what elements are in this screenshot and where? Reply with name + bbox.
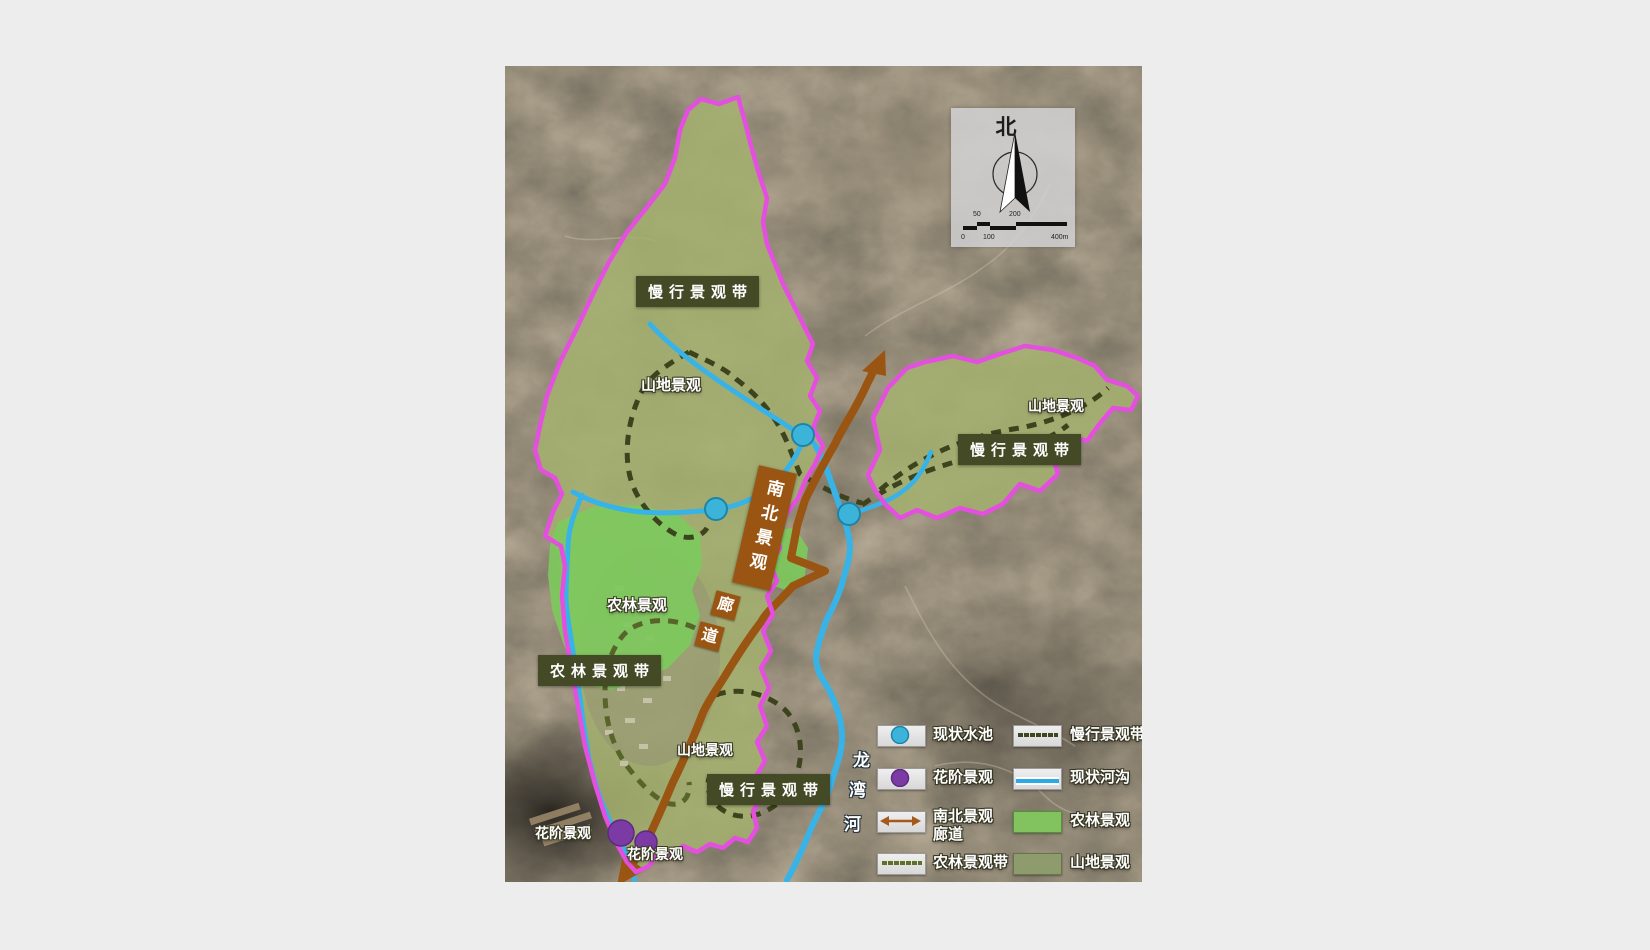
legend-label-flower-terrace: 花阶景观 [933,769,993,786]
river-swatch-line [1016,777,1059,785]
legend-swatch-water-pool [877,725,926,747]
slow-belt-dash-icon [1014,726,1059,744]
farm-belt-dash-icon [878,854,923,872]
legend-swatch-slow-belt [1013,725,1062,747]
legend-label-farm-belt: 农林景观带 [933,854,1008,871]
satellite-map: 慢行景观带 山地景观 山地景观 慢行景观带 南北景观 廊 道 农林景观 农林景观… [505,66,1142,882]
compass-scale-box: 北 50 200 0 100 400m [951,108,1075,247]
label-mountain-top: 山地景观 [641,374,701,395]
river-name-char-1: 龙 [853,746,870,771]
scale-0: 0 [961,234,965,241]
label-slow-belt-right: 慢行景观带 [958,434,1081,465]
scale-400m: 400m [1051,234,1069,241]
legend-label-water-pool: 现状水池 [933,726,993,743]
legend-label-corridor-line2: 廊道 [933,826,963,843]
legend-swatch-river [1013,768,1062,790]
label-flower-right: 花阶景观 [627,844,683,864]
scale-50: 50 [973,211,981,218]
legend-label-corridor-line1: 南北景观 [933,808,993,825]
north-arrow-left-blade [1000,132,1015,212]
legend-label-mountain: 山地景观 [1070,854,1130,871]
corridor-arrow-icon [878,812,923,830]
water-pool-c [838,503,860,525]
legend-swatch-farm-belt [877,853,926,875]
label-flower-left: 花阶景观 [535,823,591,843]
north-arrow-right-blade [1015,132,1030,212]
label-mountain-south: 山地景观 [677,740,733,760]
legend-label-river: 现状河沟 [1070,769,1130,786]
flower-terrace-swatch-icon [878,769,923,787]
flower-terrace-a [608,820,634,846]
legend-swatch-farm [1013,811,1062,833]
river-name-char-2: 湾 [849,776,866,801]
label-farmland: 农林景观 [607,594,667,615]
legend-swatch-mountain [1013,853,1062,875]
label-farm-belt: 农林景观带 [538,655,661,686]
river-name-char-3: 河 [844,810,861,835]
water-pool-swatch-icon [878,726,923,744]
label-slow-belt-south: 慢行景观带 [707,774,830,805]
north-arrow [951,108,1075,218]
scale-bar [963,222,1067,230]
label-slow-belt-top: 慢行景观带 [636,276,759,307]
water-pool-b [705,498,727,520]
water-pool-a [792,424,814,446]
scale-200: 200 [1009,211,1021,218]
legend-label-slow-belt: 慢行景观带 [1070,726,1142,743]
label-mountain-right: 山地景观 [1028,396,1084,416]
scale-100: 100 [983,234,995,241]
legend-swatch-corridor [877,811,926,833]
legend-label-farm: 农林景观 [1070,812,1130,829]
legend-swatch-flower-terrace [877,768,926,790]
planning-map-page: 慢行景观带 山地景观 山地景观 慢行景观带 南北景观 廊 道 农林景观 农林景观… [0,0,1650,950]
